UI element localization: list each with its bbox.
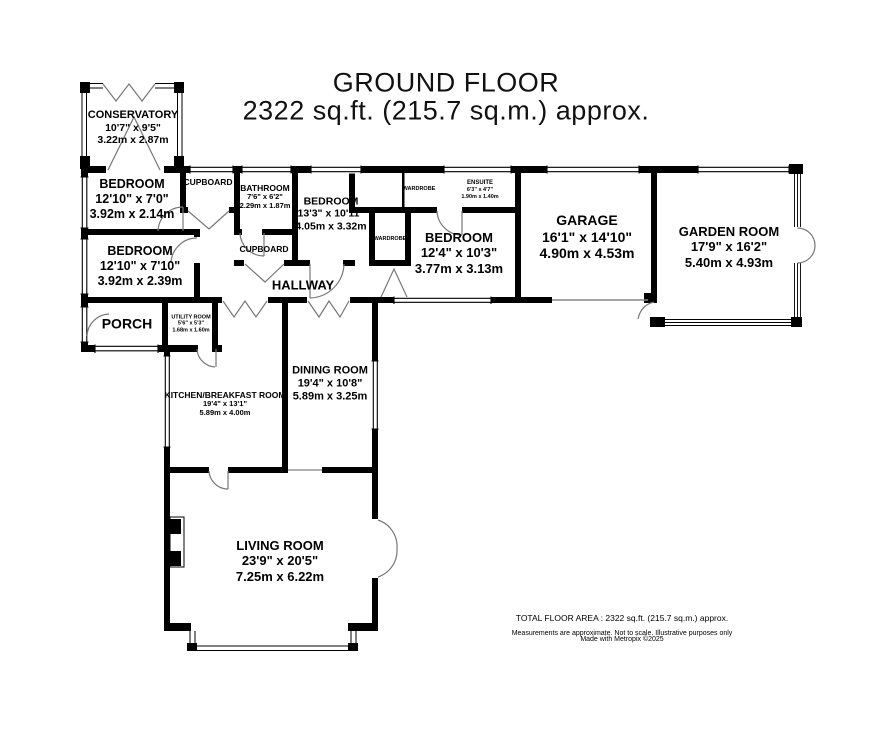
room-dims-metric: 4.05m x 3.32m: [295, 220, 366, 232]
room-label-wardrobe1: WARDROBE: [403, 186, 436, 192]
room-name: PORCH: [102, 316, 153, 333]
room-dims-metric: 5.40m x 4.93m: [679, 255, 779, 270]
room-dims-metric: 7.25m x 6.22m: [236, 569, 324, 584]
room-dims-imperial: 17'9" x 16'2": [679, 239, 779, 254]
room-dims-metric: 2.29m x 1.87m: [240, 202, 291, 211]
room-name: CONSERVATORY: [88, 109, 178, 122]
room-dims-metric: 1.90m x 1.40m: [461, 194, 498, 200]
room-dims-metric: 3.77m x 3.13m: [415, 261, 503, 276]
walls: [80, 82, 803, 651]
room-name: ENSUITE: [461, 180, 498, 187]
room-dims-metric: 5.89m x 3.25m: [292, 390, 368, 403]
room-label-bathroom: BATHROOM 7'6" x 6'2" 2.29m x 1.87m: [240, 183, 291, 211]
room-dims-metric: 1.68m x 1.60m: [171, 327, 210, 333]
room-dims-imperial: 19'4" x 10'8": [292, 378, 368, 391]
footer-total-area: TOTAL FLOOR AREA : 2322 sq.ft. (215.7 sq…: [516, 613, 728, 623]
room-name: BEDROOM: [98, 244, 183, 259]
bay-window: [190, 631, 357, 651]
room-label-garden-room: GARDEN ROOM 17'9" x 16'2" 5.40m x 4.93m: [679, 224, 779, 270]
footer-credit: Made with Metropix ©2025: [580, 636, 663, 643]
room-name: GARAGE: [540, 212, 635, 229]
room-name: BEDROOM: [90, 177, 175, 192]
room-label-kitchen: KITCHEN/BREAKFAST ROOM 19'4" x 13'1" 5.8…: [165, 390, 286, 418]
room-label-bedroom1: BEDROOM 12'10" x 7'0" 3.92m x 2.14m: [90, 177, 175, 221]
room-name: CUPBOARD: [183, 177, 232, 187]
room-name: CUPBOARD: [239, 244, 288, 254]
room-dims-imperial: 23'9" x 20'5": [236, 553, 324, 568]
room-label-dining: DINING ROOM 19'4" x 10'8" 5.89m x 3.25m: [292, 365, 368, 404]
room-name: WARDROBE: [403, 186, 436, 192]
room-label-bedroom3: BEDROOM 13'3" x 10'11" 4.05m x 3.32m: [295, 195, 366, 232]
room-dims-imperial: 10'7" x 9'5": [88, 122, 178, 134]
room-name: GARDEN ROOM: [679, 224, 779, 239]
room-dims-imperial: 12'4" x 10'3": [415, 245, 503, 260]
room-name: LIVING ROOM: [236, 538, 324, 553]
room-label-porch: PORCH: [102, 316, 153, 333]
room-label-cupboard1: CUPBOARD: [183, 177, 232, 187]
room-dims-metric: 3.22m x 2.87m: [88, 134, 178, 146]
room-label-garage: GARAGE 16'1" x 14'10" 4.90m x 4.53m: [540, 212, 635, 262]
room-dims-metric: 3.92m x 2.39m: [98, 273, 183, 288]
room-label-conservatory: CONSERVATORY 10'7" x 9'5" 3.22m x 2.87m: [88, 109, 178, 147]
room-label-utility: UTILITY ROOM 5'6" x 5'3" 1.68m x 1.60m: [171, 314, 210, 333]
room-label-bedroom4: BEDROOM 12'4" x 10'3" 3.77m x 3.13m: [415, 230, 503, 276]
room-dims-imperial: 12'10" x 7'10": [98, 259, 183, 274]
room-name: BEDROOM: [295, 195, 366, 207]
room-label-living: LIVING ROOM 23'9" x 20'5" 7.25m x 6.22m: [236, 538, 324, 584]
room-dims-imperial: 13'3" x 10'11": [295, 208, 366, 220]
room-dims-metric: 3.92m x 2.14m: [90, 206, 175, 221]
page-title-line1: GROUND FLOOR: [333, 68, 560, 99]
room-dims-imperial: 12'10" x 7'0": [90, 192, 175, 207]
room-label-wardrobe2: WARDROBE: [374, 236, 407, 242]
room-name: WARDROBE: [374, 236, 407, 242]
room-dims-imperial: 16'1" x 14'10": [540, 229, 635, 246]
room-name: DINING ROOM: [292, 365, 368, 378]
room-dims-metric: 4.90m x 4.53m: [540, 245, 635, 262]
room-name: HALLWAY: [272, 277, 334, 292]
floorplan-page: GROUND FLOOR 2322 sq.ft. (215.7 sq.m.) a…: [0, 0, 886, 737]
room-label-hallway: HALLWAY: [272, 277, 334, 292]
room-name: BEDROOM: [415, 230, 503, 245]
page-title-line2: 2322 sq.ft. (215.7 sq.m.) approx.: [243, 96, 650, 127]
room-label-cupboard2: CUPBOARD: [239, 244, 288, 254]
room-dims-metric: 5.89m x 4.00m: [165, 409, 286, 418]
room-label-ensuite: ENSUITE 6'3" x 4'7" 1.90m x 1.40m: [461, 180, 498, 200]
room-label-bedroom2: BEDROOM 12'10" x 7'10" 3.92m x 2.39m: [98, 244, 183, 288]
room-dims-imperial: 6'3" x 4'7": [461, 187, 498, 193]
